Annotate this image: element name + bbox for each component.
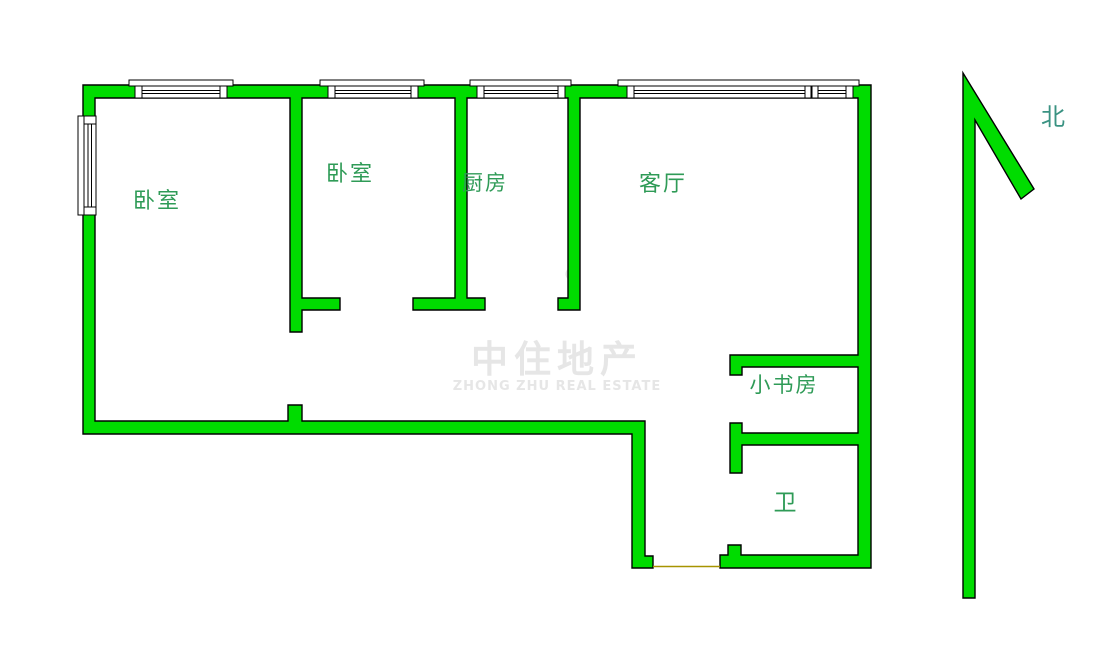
watermark-subtitle: ZHONG ZHU REAL ESTATE — [453, 379, 661, 394]
window-sill — [129, 80, 233, 86]
window-1 — [129, 80, 233, 98]
floor-plan-svg: 中住地产 ZHONG ZHU REAL ESTATE — [0, 0, 1112, 664]
window-post — [220, 86, 227, 98]
window-post — [477, 86, 484, 98]
window-post — [135, 86, 142, 98]
window-3 — [470, 80, 571, 98]
window-left — [78, 116, 96, 215]
window-frame — [477, 86, 565, 98]
window-sill — [470, 80, 571, 86]
north-label: 北 — [1041, 103, 1065, 131]
window-mullion — [805, 86, 811, 98]
window-frame — [135, 86, 227, 98]
window-frame — [627, 86, 853, 98]
window-post — [846, 86, 853, 98]
room-label-bathroom: 卫 — [774, 490, 799, 516]
floor-plan-canvas: 中住地产 ZHONG ZHU REAL ESTATE — [0, 0, 1112, 664]
window-post — [411, 86, 418, 98]
window-2 — [320, 80, 424, 98]
room-label-bedroom-1: 卧室 — [133, 189, 181, 214]
window-sill — [618, 80, 859, 86]
room-label-kitchen: 厨房 — [462, 171, 508, 195]
window-sill — [320, 80, 424, 86]
north-arrow-icon — [963, 73, 1034, 598]
window-frame — [328, 86, 418, 98]
watermark: 中住地产 ZHONG ZHU REAL ESTATE — [453, 269, 661, 395]
window-4 — [618, 80, 859, 98]
window-frame — [84, 116, 96, 215]
wall-outline-shape — [83, 85, 871, 568]
room-label-living-room: 客厅 — [639, 172, 687, 197]
room-label-bedroom-2: 卧室 — [326, 162, 374, 187]
window-post — [328, 86, 335, 98]
window-mullion — [812, 86, 818, 98]
window-post — [627, 86, 634, 98]
walls — [83, 85, 871, 568]
room-label-study: 小书房 — [750, 373, 819, 397]
window-post — [84, 207, 96, 215]
window-sill — [78, 116, 84, 215]
window-post — [558, 86, 565, 98]
window-post — [84, 116, 96, 124]
north-compass: 北 — [963, 73, 1065, 598]
watermark-title: 中住地产 — [471, 338, 643, 381]
